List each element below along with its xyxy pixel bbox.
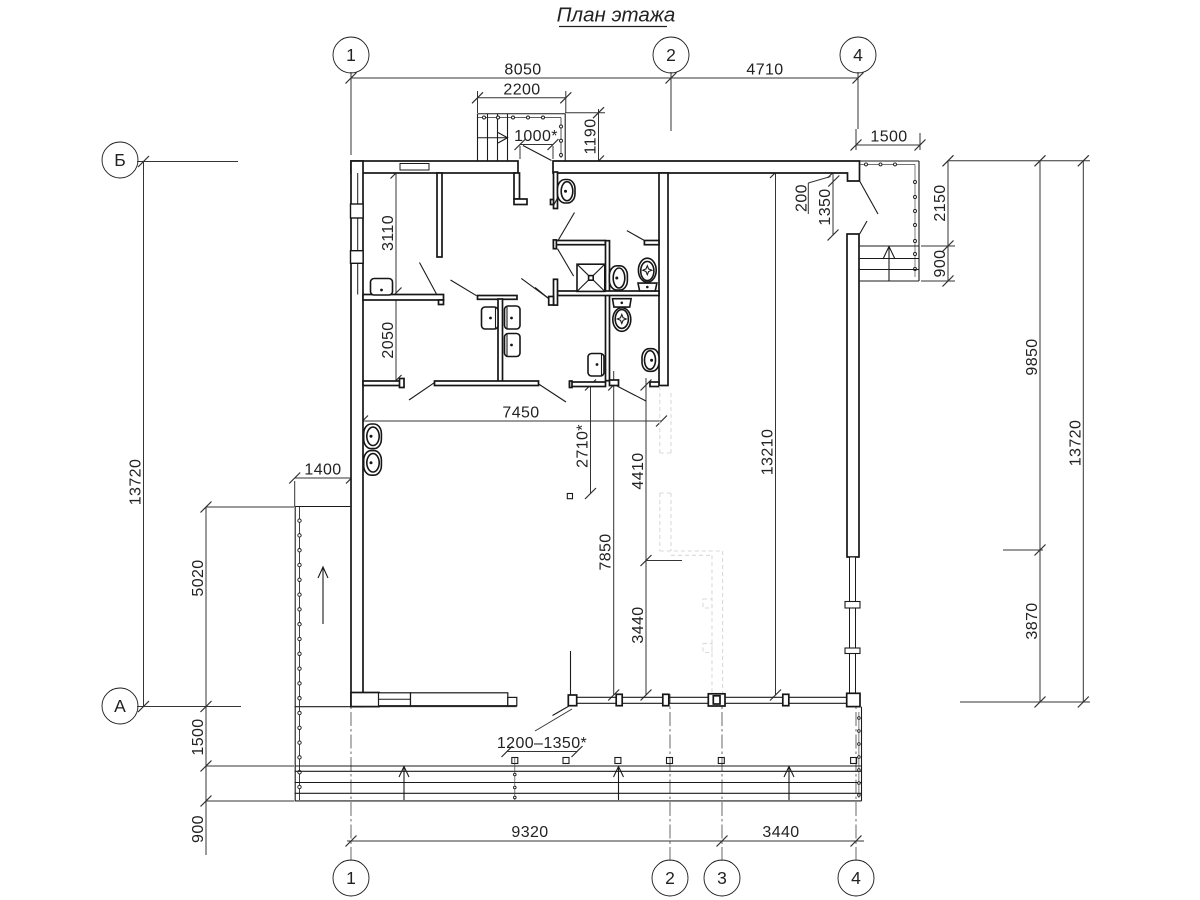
svg-text:7450: 7450 [502,405,539,422]
svg-text:9850: 9850 [1024,338,1041,375]
svg-text:8050: 8050 [504,62,541,79]
svg-text:2: 2 [666,45,676,65]
svg-text:3440: 3440 [630,606,647,643]
svg-text:13720: 13720 [128,459,145,506]
svg-text:5020: 5020 [190,559,207,596]
svg-text:1350: 1350 [817,188,834,225]
svg-text:2710*: 2710* [575,424,592,468]
svg-text:1400: 1400 [304,462,341,479]
svg-text:1500: 1500 [870,129,907,146]
svg-text:900: 900 [190,815,207,843]
svg-text:2200: 2200 [503,81,540,98]
svg-text:Б: Б [114,150,125,170]
svg-text:3870: 3870 [1024,602,1041,639]
svg-text:1190: 1190 [583,118,600,154]
svg-text:4: 4 [853,45,863,65]
svg-text:1: 1 [346,868,356,888]
svg-text:3110: 3110 [380,215,397,251]
svg-text:1500: 1500 [190,718,207,755]
svg-text:План этажа: План этажа [557,4,676,27]
svg-text:3: 3 [717,868,727,888]
svg-text:13720: 13720 [1067,420,1084,467]
svg-text:1: 1 [346,45,356,65]
svg-text:900: 900 [932,250,949,278]
svg-text:4: 4 [851,868,861,888]
svg-text:1200–1350*: 1200–1350* [497,735,587,752]
svg-text:4710: 4710 [746,62,783,79]
svg-text:9320: 9320 [511,824,548,841]
svg-text:3440: 3440 [762,824,799,841]
svg-text:А: А [114,696,126,716]
svg-text:1000*: 1000* [514,128,558,145]
svg-text:2: 2 [665,868,675,888]
svg-text:2150: 2150 [932,184,949,221]
svg-text:2050: 2050 [380,321,397,358]
svg-text:13210: 13210 [760,429,777,476]
svg-text:7850: 7850 [598,533,615,570]
svg-text:4410: 4410 [630,452,647,489]
